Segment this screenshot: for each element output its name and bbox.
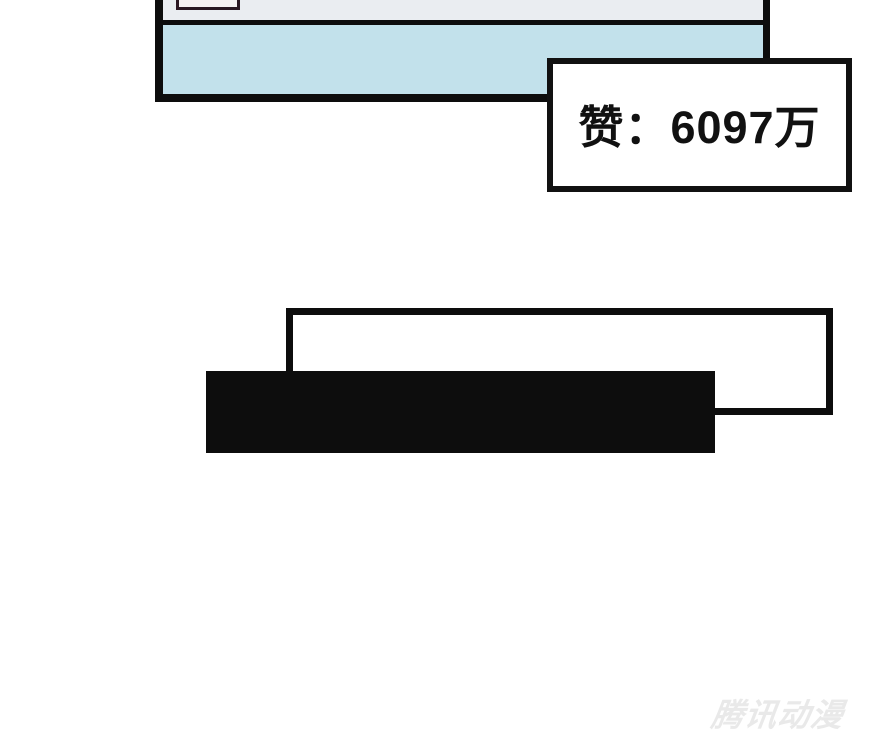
comic-panel-header-strip <box>163 0 763 20</box>
like-counter-box: 赞：6097万 <box>547 58 852 192</box>
panel-inset-box <box>176 0 240 10</box>
caption-black-bar <box>206 371 715 453</box>
like-counter-text: 赞：6097万 <box>578 91 820 156</box>
tencent-comics-watermark: 腾讯动漫 <box>709 690 847 736</box>
